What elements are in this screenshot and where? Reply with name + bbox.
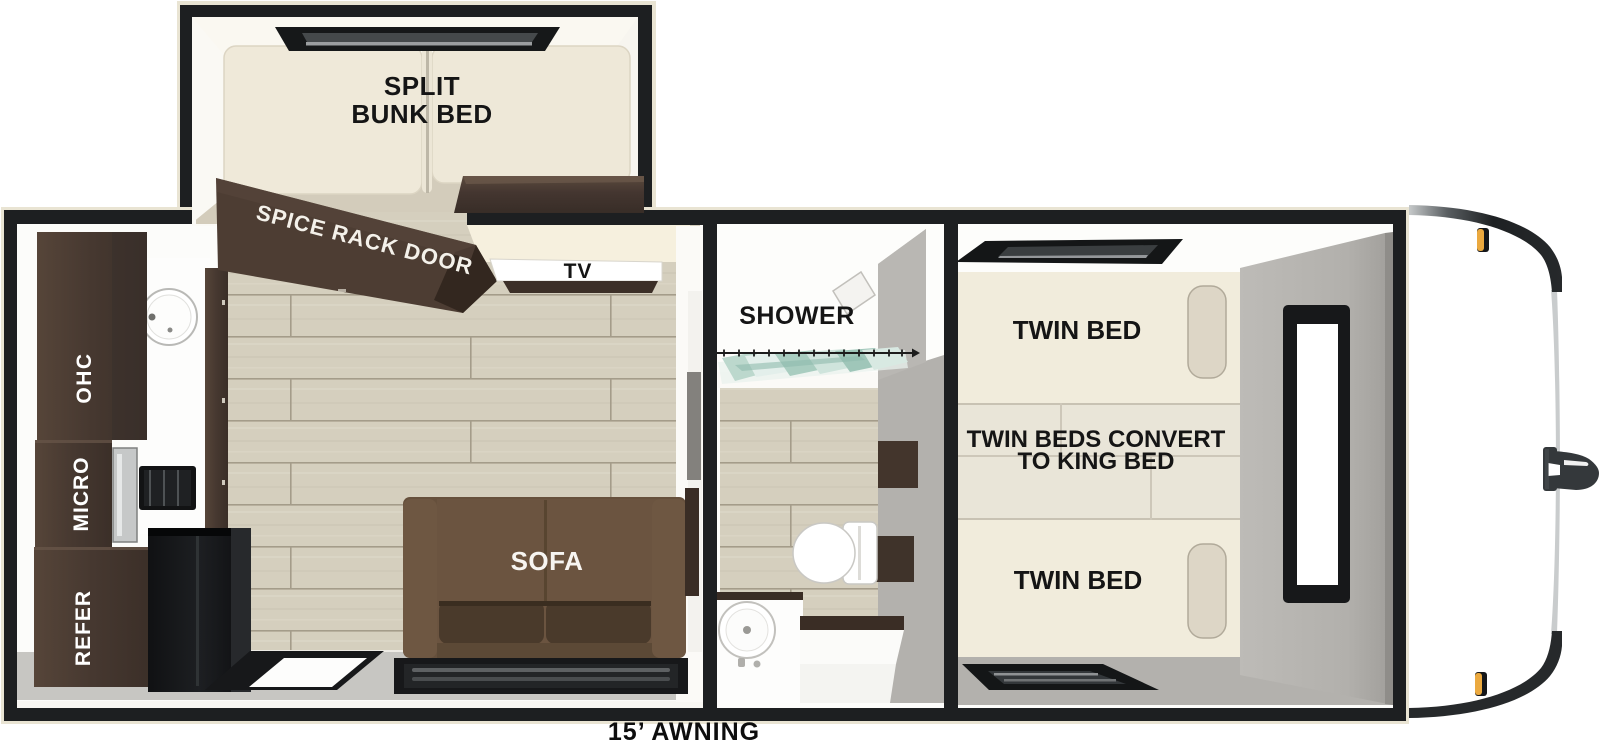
svg-text:15’ AWNING: 15’ AWNING — [608, 718, 760, 742]
svg-text:BUNK BED: BUNK BED — [351, 99, 492, 129]
svg-text:SHOWER: SHOWER — [739, 302, 855, 330]
svg-text:MICRO: MICRO — [70, 457, 93, 532]
svg-text:REFER: REFER — [72, 590, 95, 666]
svg-text:TO KING BED: TO KING BED — [1018, 448, 1175, 475]
svg-text:TWIN BED: TWIN BED — [1013, 315, 1142, 345]
svg-text:SPLIT: SPLIT — [384, 71, 460, 101]
svg-text:TV: TV — [564, 260, 593, 283]
svg-text:SOFA: SOFA — [511, 546, 584, 576]
svg-text:OHC: OHC — [73, 352, 96, 403]
svg-text:TWIN BED: TWIN BED — [1014, 565, 1143, 595]
